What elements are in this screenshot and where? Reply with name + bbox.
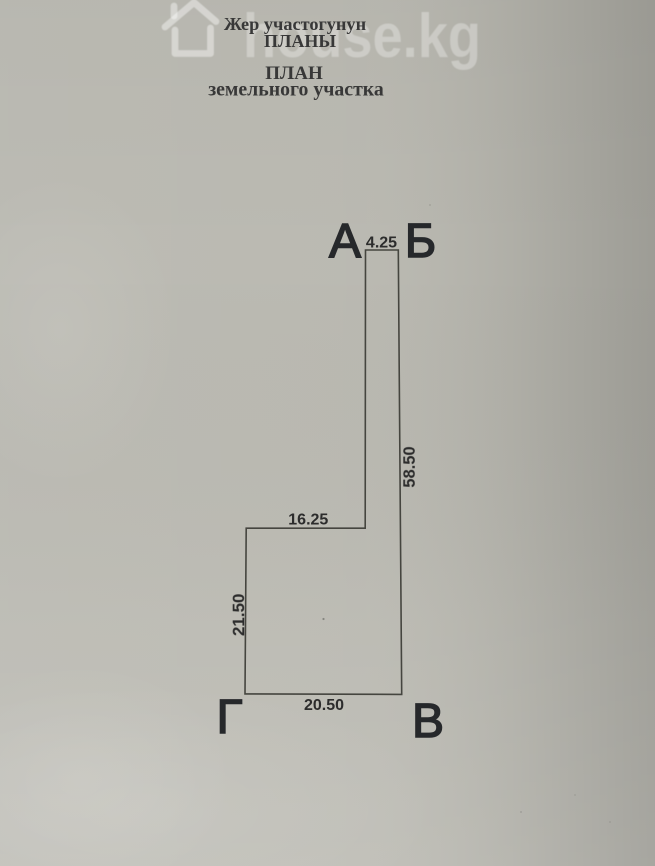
svg-text:земельного участка: земельного участка: [208, 79, 384, 101]
svg-text:Б: Б: [405, 215, 437, 268]
svg-text:А: А: [329, 215, 361, 268]
svg-text:4.25: 4.25: [366, 235, 397, 252]
svg-text:Г: Г: [217, 691, 243, 744]
svg-text:58.50: 58.50: [401, 446, 419, 487]
svg-text:21.50: 21.50: [229, 594, 248, 637]
svg-text:20.50: 20.50: [304, 697, 344, 714]
svg-text:ПЛАНЫ: ПЛАНЫ: [264, 31, 336, 51]
svg-text:16.25: 16.25: [288, 512, 328, 529]
svg-text:В: В: [412, 695, 444, 748]
